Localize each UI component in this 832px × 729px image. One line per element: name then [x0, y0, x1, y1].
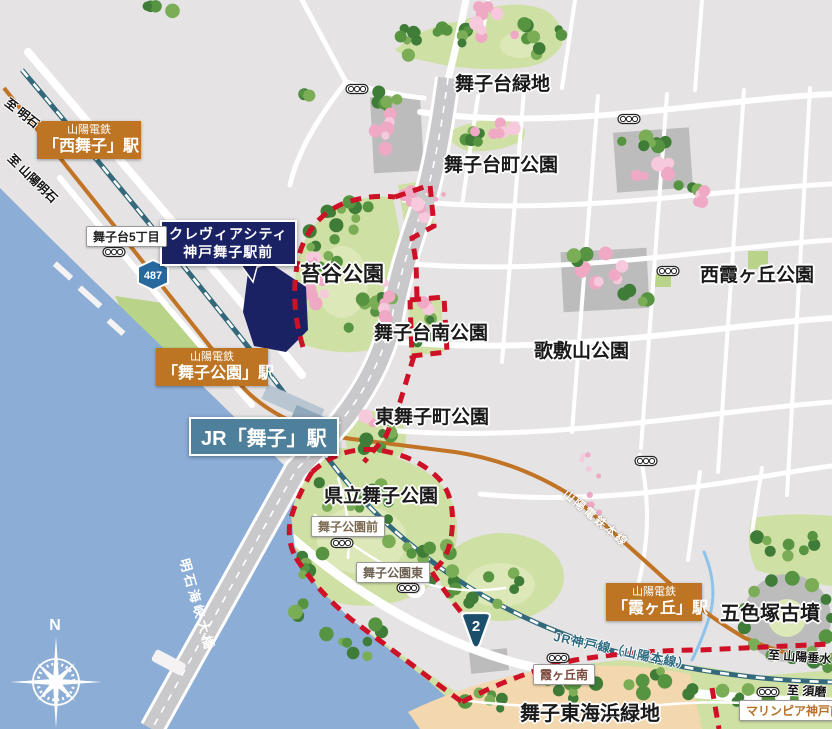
station-line-name: 山陽電鉄 — [43, 124, 135, 137]
property-name-line1: クレヴィアシティ — [169, 225, 288, 243]
label-higashi-maikocho-koen: 東舞子町公園 — [375, 402, 489, 429]
traffic-signal-icon — [547, 654, 569, 663]
compass-north-label: N — [49, 617, 61, 634]
traffic-signal-icon — [397, 584, 419, 593]
label-maiko-higashi-kaihin-ryokuchi: 舞子東海浜緑地 — [520, 697, 660, 726]
station-name: 「西舞子」駅 — [43, 137, 135, 156]
direction-to-suma: 至 須磨 — [787, 681, 827, 700]
station-badge-maiko-koen: 山陽電鉄 「舞子公園」駅 — [156, 348, 268, 386]
traffic-signal-icon — [103, 248, 125, 257]
traffic-signal-icon — [346, 85, 368, 94]
traffic-signal-icon — [657, 267, 679, 276]
route-2-badge: 2 — [456, 610, 496, 657]
traffic-signal-icon — [635, 457, 657, 466]
label-maikodaicho-koen: 舞子台町公園 — [444, 150, 558, 177]
station-line-name: 山陽電鉄 — [162, 351, 262, 364]
area-map: N 487 2 舞子台緑地 舞子台町公園 西霞ヶ丘公園 苔谷公園 舞子台南公園 … — [0, 0, 832, 729]
spot-badge-maikodai-5chome: 舞子台5丁目 — [86, 226, 167, 247]
station-name: 「霞ヶ丘」駅 — [612, 599, 696, 618]
station-name: 「舞子公園」駅 — [162, 364, 262, 383]
spot-badge-maiko-koen-higashi: 舞子公園東 — [356, 562, 430, 583]
station-line-name: 山陽電鉄 — [612, 586, 696, 599]
route-2-number: 2 — [472, 618, 480, 635]
label-maikodai-minami-koen: 舞子台南公園 — [374, 318, 488, 345]
traffic-signal-icon — [331, 539, 353, 548]
spot-badge-maiko-koen-mae: 舞子公園前 — [311, 516, 385, 537]
label-kokedani-koen: 苔谷公園 — [300, 258, 384, 288]
label-maikodai-ryokuchi: 舞子台緑地 — [455, 69, 550, 96]
property-name-line2: 神戸舞子駅前 — [169, 243, 288, 261]
property-badge: クレヴィアシティ 神戸舞子駅前 — [160, 220, 297, 266]
label-goshikizuka-kofun: 五色塚古墳 — [720, 597, 820, 626]
spot-badge-kasumigaoka-minami: 霞ヶ丘南 — [533, 664, 595, 685]
traffic-signal-icon — [757, 688, 779, 697]
label-kenritsu-maiko-koen: 県立舞子公園 — [324, 481, 438, 508]
label-utashikiyama-koen: 歌敷山公園 — [534, 336, 629, 363]
station-badge-nishi-maiko: 山陽電鉄 「西舞子」駅 — [37, 121, 141, 159]
station-badge-kasumigaoka: 山陽電鉄 「霞ヶ丘」駅 — [606, 583, 702, 621]
label-nishi-kasumigaoka-koen: 西霞ヶ丘公園 — [700, 260, 814, 287]
map-canvas: N — [0, 0, 832, 729]
station-badge-jr-maiko: JR「舞子」駅 — [189, 417, 339, 456]
spot-badge-marinpia-kobe-mae: マリンピア神戸前 — [739, 700, 832, 721]
traffic-signal-icon — [618, 115, 640, 124]
route-487-number: 487 — [144, 270, 162, 282]
